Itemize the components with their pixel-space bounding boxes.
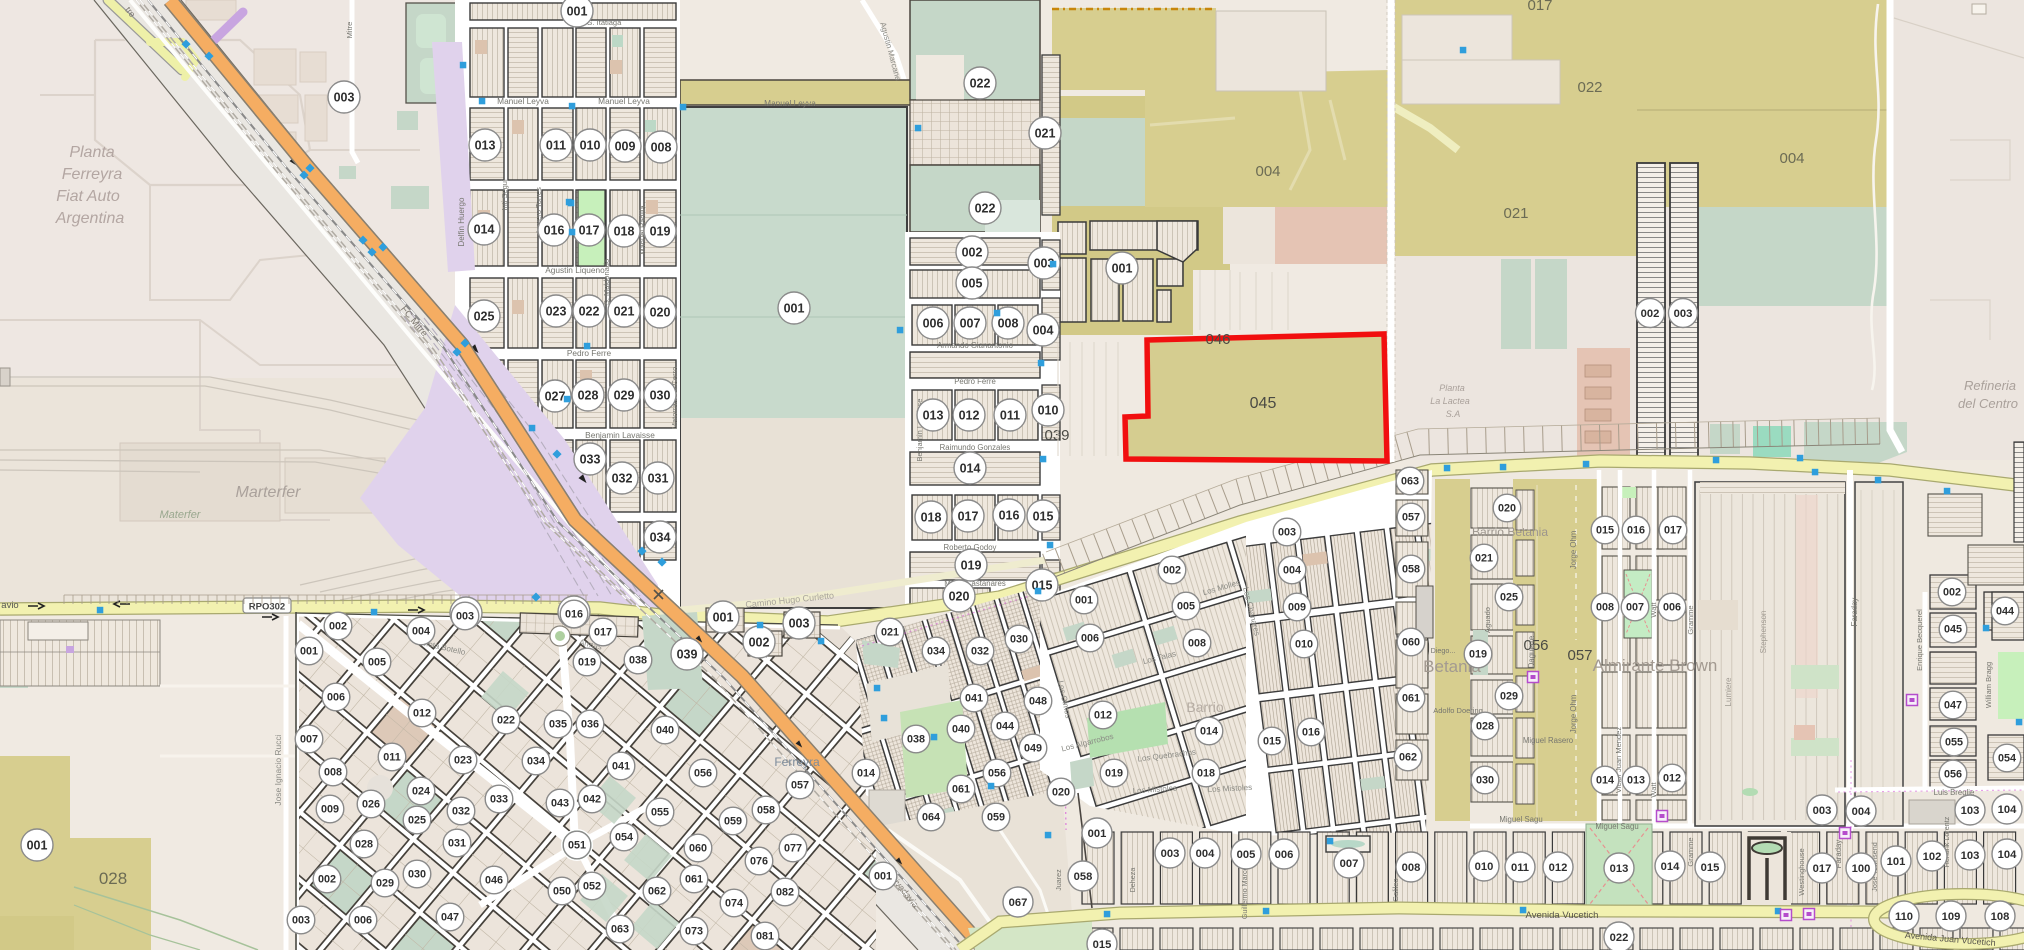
svg-text:004: 004	[412, 626, 430, 638]
svg-text:045: 045	[1944, 624, 1962, 636]
svg-text:015: 015	[1032, 578, 1053, 592]
svg-text:055: 055	[651, 807, 669, 819]
svg-text:063: 063	[611, 924, 629, 936]
svg-text:030: 030	[1476, 775, 1494, 787]
svg-text:081: 081	[756, 931, 774, 943]
svg-text:035: 035	[549, 719, 567, 731]
svg-text:007: 007	[960, 316, 981, 330]
svg-text:004: 004	[1779, 150, 1804, 167]
svg-text:Pedro Ferre: Pedro Ferre	[567, 348, 612, 358]
svg-text:103: 103	[1961, 805, 1980, 817]
svg-text:014: 014	[474, 222, 495, 236]
svg-text:Miguel Rasero: Miguel Rasero	[1523, 736, 1574, 745]
svg-text:028: 028	[355, 839, 373, 851]
svg-text:019: 019	[650, 224, 671, 238]
svg-text:032: 032	[612, 471, 633, 485]
svg-text:019: 019	[1469, 649, 1487, 661]
svg-text:Refineria: Refineria	[1964, 378, 2016, 393]
svg-text:Ferreyra: Ferreyra	[62, 166, 123, 183]
svg-text:058: 058	[1402, 564, 1420, 576]
svg-text:006: 006	[327, 692, 345, 704]
svg-text:104: 104	[1998, 849, 2017, 861]
svg-text:003: 003	[1813, 805, 1832, 817]
svg-text:103: 103	[1961, 850, 1980, 862]
svg-text:014: 014	[1661, 861, 1680, 873]
svg-text:027: 027	[545, 389, 566, 403]
svg-text:021: 021	[881, 627, 899, 639]
svg-text:Ferreyra: Ferreyra	[774, 755, 820, 769]
svg-text:005: 005	[368, 657, 386, 669]
svg-text:054: 054	[1998, 753, 2016, 765]
svg-text:avio: avio	[1, 600, 18, 611]
svg-text:020: 020	[949, 589, 970, 603]
svg-text:061: 061	[1402, 693, 1420, 705]
svg-text:082: 082	[776, 887, 794, 899]
svg-text:009: 009	[1288, 602, 1306, 614]
svg-text:003: 003	[1674, 308, 1693, 320]
svg-text:001: 001	[27, 838, 48, 852]
svg-text:S.A: S.A	[1446, 409, 1461, 419]
svg-text:017: 017	[1527, 0, 1552, 14]
svg-text:Fiat Auto: Fiat Auto	[56, 188, 120, 205]
svg-text:052: 052	[583, 881, 601, 893]
svg-text:043: 043	[551, 798, 569, 810]
svg-text:Gramme: Gramme	[1686, 605, 1695, 634]
svg-text:004: 004	[1196, 848, 1215, 860]
svg-text:La Lactea: La Lactea	[1430, 396, 1470, 406]
svg-text:030: 030	[1010, 634, 1028, 646]
svg-text:Lumiere: Lumiere	[1724, 677, 1733, 706]
svg-text:036: 036	[581, 719, 599, 731]
svg-text:025: 025	[474, 309, 495, 323]
svg-text:Agustin Liqueno: Agustin Liqueno	[545, 265, 605, 275]
svg-text:039: 039	[677, 647, 698, 661]
svg-text:038: 038	[629, 655, 647, 667]
svg-text:104: 104	[1998, 804, 2017, 816]
svg-text:109: 109	[1942, 911, 1961, 923]
svg-text:016: 016	[1627, 525, 1645, 537]
svg-text:014: 014	[1200, 726, 1218, 738]
svg-text:008: 008	[1596, 602, 1614, 614]
svg-text:046: 046	[485, 875, 503, 887]
svg-text:Aguado: Aguado	[1483, 607, 1492, 633]
svg-text:011: 011	[383, 752, 400, 764]
svg-text:022: 022	[1577, 79, 1602, 96]
svg-text:022: 022	[579, 304, 600, 318]
svg-text:074: 074	[725, 898, 743, 910]
svg-text:028: 028	[1476, 721, 1494, 733]
svg-text:001: 001	[300, 646, 318, 658]
svg-text:020: 020	[650, 305, 671, 319]
svg-text:004: 004	[1852, 806, 1871, 818]
svg-text:Manuel Leyva: Manuel Leyva	[598, 96, 650, 106]
svg-text:002: 002	[318, 874, 336, 886]
svg-text:077: 077	[784, 843, 802, 855]
svg-text:044: 044	[1996, 606, 2014, 618]
svg-text:034: 034	[650, 530, 671, 544]
svg-text:013: 013	[1610, 863, 1629, 875]
svg-text:017: 017	[1664, 525, 1682, 537]
svg-text:002: 002	[1163, 565, 1181, 577]
svg-text:045: 045	[1250, 395, 1277, 412]
svg-text:020: 020	[1052, 787, 1070, 799]
svg-text:009: 009	[321, 804, 339, 816]
svg-text:003: 003	[456, 611, 474, 623]
svg-text:016: 016	[999, 508, 1020, 522]
svg-text:110: 110	[1895, 911, 1913, 923]
svg-text:Planta: Planta	[69, 144, 114, 161]
svg-text:003: 003	[1161, 848, 1180, 860]
svg-text:Avenida Vucetich: Avenida Vucetich	[1526, 910, 1599, 921]
svg-text:049: 049	[1024, 743, 1042, 755]
svg-text:Mitre: Mitre	[345, 22, 354, 39]
svg-text:016: 016	[1302, 727, 1320, 739]
svg-text:001: 001	[713, 610, 734, 624]
svg-text:050: 050	[553, 886, 571, 898]
svg-text:034: 034	[927, 646, 945, 658]
svg-text:001: 001	[874, 871, 892, 883]
svg-text:051: 051	[568, 840, 586, 852]
svg-text:010: 010	[1038, 403, 1059, 417]
svg-text:033: 033	[580, 452, 601, 466]
svg-text:013: 013	[1627, 775, 1645, 787]
svg-text:002: 002	[962, 245, 983, 259]
svg-text:003: 003	[789, 616, 810, 630]
svg-text:060: 060	[689, 843, 707, 855]
svg-text:001: 001	[1075, 595, 1093, 607]
svg-text:001: 001	[1112, 261, 1133, 275]
svg-text:011: 011	[1000, 408, 1020, 422]
svg-text:009: 009	[615, 139, 636, 153]
svg-text:013: 013	[923, 408, 944, 422]
svg-text:021: 021	[1035, 126, 1056, 140]
svg-text:059: 059	[987, 812, 1005, 824]
svg-text:040: 040	[656, 725, 674, 737]
svg-text:067: 067	[1009, 897, 1028, 909]
svg-text:003: 003	[292, 915, 310, 927]
svg-text:054: 054	[615, 832, 633, 844]
svg-text:014: 014	[960, 461, 981, 475]
svg-text:030: 030	[650, 388, 671, 402]
svg-text:055: 055	[1945, 737, 1963, 749]
svg-text:031: 031	[648, 471, 669, 485]
svg-text:Almirante Brown: Almirante Brown	[1593, 656, 1718, 675]
svg-text:Manuel Leyva: Manuel Leyva	[497, 96, 549, 106]
svg-text:002: 002	[329, 621, 347, 633]
svg-text:021: 021	[1475, 553, 1493, 565]
svg-text:031: 031	[448, 838, 466, 850]
svg-text:023: 023	[546, 304, 567, 318]
svg-text:022: 022	[497, 715, 515, 727]
svg-text:005: 005	[962, 276, 983, 290]
svg-text:041: 041	[965, 693, 983, 705]
svg-text:014: 014	[857, 768, 875, 780]
svg-text:021: 021	[1503, 205, 1528, 222]
svg-text:011: 011	[546, 138, 566, 152]
svg-text:017: 017	[1813, 863, 1832, 875]
svg-text:Daguerre: Daguerre	[1527, 636, 1536, 669]
svg-text:017: 017	[958, 509, 979, 523]
svg-text:003: 003	[1278, 527, 1296, 539]
svg-text:002: 002	[1641, 308, 1660, 320]
svg-text:039: 039	[1044, 427, 1069, 444]
svg-text:002: 002	[1943, 587, 1961, 599]
svg-text:028: 028	[578, 388, 599, 402]
svg-text:Jose Ignacio Rucci: Jose Ignacio Rucci	[273, 734, 283, 805]
svg-text:008: 008	[1188, 638, 1206, 650]
svg-text:059: 059	[724, 816, 742, 828]
svg-text:007: 007	[1626, 602, 1644, 614]
svg-text:012: 012	[1549, 862, 1568, 874]
svg-text:033: 033	[490, 794, 508, 806]
svg-text:008: 008	[998, 316, 1019, 330]
svg-text:026: 026	[362, 799, 380, 811]
svg-text:001: 001	[567, 4, 588, 18]
svg-text:032: 032	[452, 806, 470, 818]
svg-text:076: 076	[750, 856, 768, 868]
svg-text:029: 029	[1500, 691, 1518, 703]
svg-text:061: 061	[685, 874, 703, 886]
svg-text:Armando Gianantonio: Armando Gianantonio	[937, 341, 1014, 350]
svg-text:Enrique Becquerel: Enrique Becquerel	[1915, 609, 1924, 671]
svg-text:019: 019	[578, 657, 596, 669]
svg-text:Gramme: Gramme	[1686, 837, 1695, 866]
svg-text:012: 012	[1094, 710, 1112, 722]
svg-text:Adolfo Doering: Adolfo Doering	[1433, 706, 1483, 715]
svg-text:011: 011	[1511, 862, 1529, 874]
svg-text:Marterfer: Marterfer	[236, 484, 302, 501]
svg-text:Miguel Sagu: Miguel Sagu	[1499, 815, 1542, 824]
svg-text:Inti Segui: Inti Segui	[500, 179, 509, 211]
svg-text:018: 018	[614, 224, 635, 238]
svg-text:Raimundo Gonzales: Raimundo Gonzales	[940, 443, 1011, 452]
svg-text:William Bragg: William Bragg	[1984, 662, 1993, 708]
svg-text:006: 006	[1663, 602, 1681, 614]
svg-text:004: 004	[1283, 565, 1301, 577]
svg-text:015: 015	[1033, 509, 1054, 523]
svg-text:Juarez: Juarez	[1054, 869, 1063, 891]
svg-text:016: 016	[565, 609, 583, 621]
svg-text:Argentina: Argentina	[55, 210, 125, 227]
svg-text:007: 007	[1340, 858, 1359, 870]
svg-text:Galileo: Galileo	[1391, 878, 1400, 901]
svg-text:018: 018	[1197, 768, 1215, 780]
svg-text:017: 017	[579, 223, 600, 237]
svg-text:022: 022	[1610, 932, 1629, 944]
svg-text:Barrio Betania: Barrio Betania	[1472, 525, 1548, 539]
svg-text:015: 015	[1596, 525, 1614, 537]
svg-text:004: 004	[1033, 323, 1054, 337]
svg-text:010: 010	[1475, 861, 1494, 873]
svg-text:Jorge Ohm: Jorge Ohm	[1569, 695, 1578, 734]
svg-text:056: 056	[694, 768, 712, 780]
svg-text:006: 006	[923, 316, 944, 330]
svg-text:030: 030	[408, 869, 426, 881]
svg-text:Planta: Planta	[1439, 383, 1465, 393]
svg-text:024: 024	[412, 786, 430, 798]
svg-text:016: 016	[544, 223, 565, 237]
svg-text:Materfer: Materfer	[160, 509, 202, 521]
svg-text:Watt: Watt	[1649, 602, 1658, 618]
svg-text:002: 002	[749, 635, 770, 649]
svg-text:010: 010	[580, 138, 601, 152]
svg-text:010: 010	[1295, 639, 1313, 651]
svg-text:017: 017	[594, 627, 612, 639]
svg-text:064: 064	[922, 812, 940, 824]
svg-text:019: 019	[961, 558, 982, 572]
svg-text:022: 022	[970, 76, 991, 90]
svg-text:022: 022	[975, 201, 996, 215]
svg-text:029: 029	[614, 388, 635, 402]
svg-text:006: 006	[1081, 633, 1099, 645]
svg-text:001: 001	[784, 301, 805, 315]
svg-text:025: 025	[1500, 592, 1518, 604]
svg-text:008: 008	[651, 140, 672, 154]
svg-text:Benjamin Lavaisse: Benjamin Lavaisse	[585, 430, 655, 440]
svg-text:Manuel Leyva: Manuel Leyva	[764, 98, 816, 108]
svg-text:046: 046	[1205, 331, 1230, 348]
svg-text:Jorge Ohm: Jorge Ohm	[1569, 531, 1578, 570]
svg-text:041: 041	[612, 761, 630, 773]
svg-text:Delfin Huergo: Delfin Huergo	[457, 197, 466, 246]
svg-text:101: 101	[1887, 856, 1906, 868]
svg-text:062: 062	[1399, 752, 1417, 764]
svg-text:058: 058	[1074, 871, 1093, 883]
svg-text:042: 042	[583, 794, 601, 806]
svg-text:S. Maldonado: S. Maldonado	[602, 259, 611, 305]
svg-text:Faraday: Faraday	[1850, 598, 1859, 627]
svg-text:005: 005	[1237, 849, 1256, 861]
svg-text:032: 032	[971, 646, 989, 658]
svg-text:021: 021	[614, 304, 635, 318]
svg-text:040: 040	[952, 724, 970, 736]
svg-text:060: 060	[1402, 637, 1420, 649]
svg-text:007: 007	[300, 734, 318, 746]
svg-text:057: 057	[791, 780, 809, 792]
svg-text:Westinghouse: Westinghouse	[1797, 848, 1806, 895]
svg-text:025: 025	[408, 815, 426, 827]
svg-text:057: 057	[1567, 647, 1592, 664]
svg-text:Pedro Ferre: Pedro Ferre	[954, 377, 996, 386]
svg-text:020: 020	[1498, 503, 1516, 515]
svg-text:012: 012	[1663, 773, 1681, 785]
svg-text:015: 015	[1263, 736, 1281, 748]
svg-text:056: 056	[988, 768, 1006, 780]
svg-text:005: 005	[1177, 601, 1195, 613]
svg-text:100: 100	[1852, 863, 1871, 875]
svg-text:013: 013	[475, 138, 496, 152]
svg-text:058: 058	[757, 805, 775, 817]
svg-text:001: 001	[1088, 828, 1107, 840]
svg-text:Deheza: Deheza	[1128, 868, 1137, 893]
svg-text:047: 047	[1944, 700, 1962, 712]
svg-text:062: 062	[648, 886, 666, 898]
svg-text:047: 047	[441, 912, 459, 924]
svg-text:108: 108	[1991, 911, 2010, 923]
svg-text:012: 012	[413, 708, 431, 720]
svg-text:Miguel Sagu: Miguel Sagu	[1595, 822, 1638, 831]
svg-text:Barrio: Barrio	[1186, 699, 1224, 715]
svg-text:034: 034	[527, 756, 545, 768]
svg-text:057: 057	[1402, 512, 1420, 524]
svg-text:102: 102	[1923, 851, 1942, 863]
svg-text:029: 029	[376, 878, 394, 890]
svg-text:038: 038	[907, 734, 925, 746]
svg-text:063: 063	[1401, 476, 1419, 488]
svg-text:023: 023	[454, 755, 472, 767]
svg-text:056: 056	[1944, 769, 1962, 781]
svg-text:012: 012	[959, 408, 980, 422]
svg-text:006: 006	[1275, 849, 1294, 861]
svg-text:008: 008	[1402, 862, 1421, 874]
svg-text:018: 018	[921, 510, 942, 524]
svg-text:Stephenson: Stephenson	[1759, 611, 1768, 654]
svg-text:del Centro: del Centro	[1958, 396, 2018, 411]
svg-text:019: 019	[1105, 768, 1123, 780]
svg-text:061: 061	[952, 784, 970, 796]
svg-text:Diego...: Diego...	[1431, 646, 1456, 655]
svg-text:015: 015	[1093, 939, 1112, 950]
svg-text:028: 028	[99, 869, 127, 888]
svg-text:073: 073	[685, 926, 703, 938]
svg-text:Watt: Watt	[1649, 782, 1658, 798]
svg-text:003: 003	[334, 90, 355, 104]
svg-text:015: 015	[1701, 862, 1720, 874]
svg-text:048: 048	[1029, 696, 1047, 708]
svg-text:004: 004	[1255, 163, 1280, 180]
svg-text:044: 044	[996, 721, 1014, 733]
svg-text:006: 006	[354, 915, 372, 927]
svg-text:008: 008	[324, 767, 342, 779]
svg-text:014: 014	[1596, 775, 1614, 787]
